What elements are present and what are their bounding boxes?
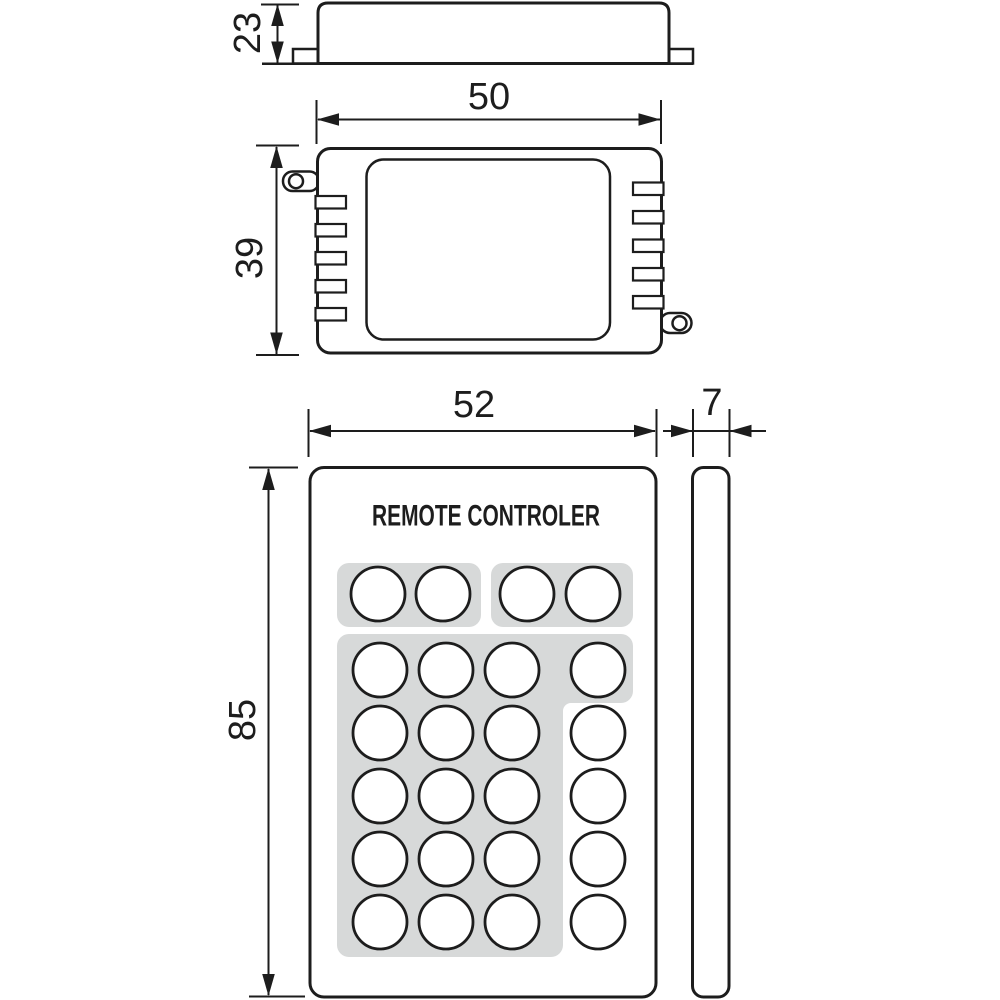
dimension-50: 50	[317, 76, 662, 144]
mounting-ear-left	[283, 172, 319, 192]
remote-button	[571, 832, 625, 886]
vent-slot	[316, 280, 347, 293]
receiver-side-outline	[318, 3, 669, 64]
dimension-52: 52	[309, 384, 657, 457]
dim-arrowhead-left	[309, 425, 331, 438]
remote-side-view: 7	[663, 382, 766, 997]
ear-hole	[289, 174, 303, 188]
dim-label-85: 85	[222, 699, 264, 741]
vent-slot	[316, 308, 347, 321]
receiver-top-view: 50 39	[229, 76, 692, 355]
vent-slot	[316, 252, 347, 265]
remote-button	[419, 832, 473, 886]
remote-button	[571, 895, 625, 949]
remote-button	[500, 567, 554, 621]
remote-button	[566, 567, 620, 621]
receiver-foot-right	[669, 49, 693, 64]
remote-button	[419, 706, 473, 760]
remote-button	[571, 643, 625, 697]
remote-button	[419, 643, 473, 697]
remote-front-view: 52 85 REMOTE CONTROLER	[222, 384, 657, 997]
dim-arrowhead-left	[730, 425, 752, 438]
remote-button	[353, 643, 407, 697]
dim-label-23: 23	[227, 12, 269, 54]
remote-button	[353, 832, 407, 886]
receiver-side-view: 23	[227, 3, 693, 64]
dimension-23: 23	[227, 4, 299, 64]
vent-slot	[633, 240, 664, 253]
dim-arrowhead-right	[639, 113, 661, 126]
vent-slot	[633, 183, 664, 196]
dim-label-39: 39	[229, 237, 271, 279]
remote-button	[485, 643, 539, 697]
vent-slot	[316, 196, 347, 209]
remote-button	[353, 769, 407, 823]
dim-label-7: 7	[701, 382, 722, 424]
remote-button	[353, 895, 407, 949]
dim-arrowhead-up	[262, 468, 275, 490]
remote-button	[571, 769, 625, 823]
vent-slot	[316, 224, 347, 237]
remote-button	[485, 706, 539, 760]
dim-label-50: 50	[468, 76, 510, 118]
technical-drawing: 23 50 39	[0, 0, 1000, 1000]
remote-button	[485, 895, 539, 949]
remote-button	[419, 769, 473, 823]
dimension-85: 85	[222, 468, 305, 997]
dim-arrowhead-up	[270, 146, 283, 168]
ear-hole	[673, 316, 687, 330]
remote-button	[419, 895, 473, 949]
remote-side-outline	[693, 468, 730, 998]
remote-button	[351, 567, 405, 621]
vent-slot	[633, 268, 664, 281]
dim-arrowhead-right	[634, 425, 656, 438]
dim-arrowhead-left	[317, 113, 339, 126]
remote-button	[485, 832, 539, 886]
technical-drawing-page: 23 50 39	[0, 0, 1000, 1000]
mounting-ear-right	[660, 313, 692, 333]
dim-arrowhead-right	[671, 425, 693, 438]
dim-arrowhead-down	[270, 333, 283, 355]
remote-button	[485, 769, 539, 823]
vent-slot	[633, 296, 664, 309]
remote-title: REMOTE CONTROLER	[372, 500, 600, 533]
vent-slot	[633, 211, 664, 224]
remote-button	[571, 706, 625, 760]
remote-button	[416, 567, 470, 621]
remote-button	[353, 706, 407, 760]
dim-label-52: 52	[453, 384, 495, 426]
dimension-7: 7	[663, 382, 766, 457]
dim-arrowhead-up	[271, 4, 284, 26]
receiver-foot-left	[293, 49, 319, 64]
dim-arrowhead-down	[262, 974, 275, 996]
dim-arrowhead-down	[271, 42, 284, 64]
